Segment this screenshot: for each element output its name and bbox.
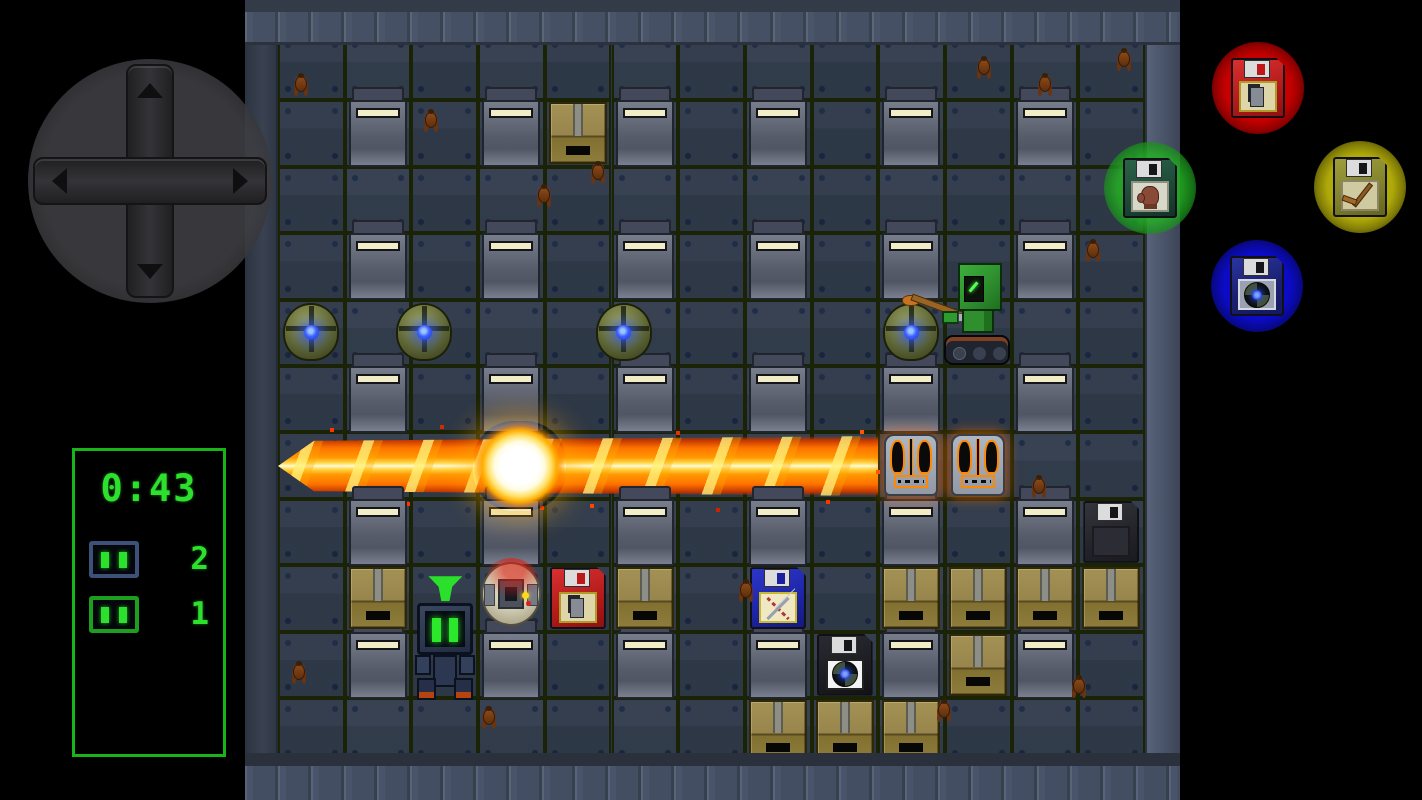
roach (478, 705, 500, 729)
metal-block (349, 619, 407, 699)
roach (1028, 474, 1050, 498)
burning-robot (884, 434, 938, 496)
floor-cell (945, 167, 1012, 233)
floor-cell (545, 233, 612, 299)
metal-block (482, 619, 540, 699)
floor-cell (812, 167, 879, 233)
damaged-robot (481, 562, 541, 626)
green-robot-count: 1 (190, 596, 209, 632)
floor-cell (678, 632, 745, 698)
bomb-floppy-icon (1230, 256, 1284, 316)
floor-cell (545, 499, 612, 565)
dpad-horizontal-bar[interactable] (33, 157, 267, 205)
explosion-core (473, 421, 566, 511)
metal-block (749, 220, 807, 300)
green-robot-head-icon (89, 596, 139, 633)
arena-wall-right (1145, 0, 1180, 800)
floor-cell (678, 167, 745, 233)
metal-block (749, 619, 807, 699)
explosion-sparks (278, 436, 282, 440)
action-button-red[interactable] (1212, 42, 1304, 134)
roach (973, 55, 995, 79)
status-panel: 0:43 2 1 (72, 448, 226, 757)
roach (1082, 238, 1104, 262)
wooden-crate (1016, 567, 1074, 629)
roach (587, 160, 609, 184)
floor-cell (1078, 300, 1145, 366)
metal-block (616, 486, 674, 566)
floor-cell (678, 300, 745, 366)
roach (735, 578, 757, 602)
pickup-floppy-red-detonator (550, 567, 606, 629)
metal-block (616, 619, 674, 699)
glove-floppy-icon (1123, 158, 1177, 218)
metal-block (349, 87, 407, 167)
metal-block (882, 486, 940, 566)
roach (933, 698, 955, 722)
wooden-crate (949, 567, 1007, 629)
metal-block (616, 220, 674, 300)
floor-cell (812, 499, 879, 565)
floor-cell (945, 499, 1012, 565)
metal-block (482, 220, 540, 300)
metal-block (616, 87, 674, 167)
floor-cell (278, 100, 345, 166)
metal-block (349, 220, 407, 300)
pickup-floppy-black (1083, 501, 1139, 563)
target-marker-icon (428, 576, 462, 601)
arena-wall-top (245, 0, 1180, 45)
bomb (396, 303, 452, 361)
floor-cell (945, 366, 1012, 432)
wooden-crate (616, 567, 674, 629)
enemy-robot (413, 576, 477, 700)
pickup-floppy-blue-cross (750, 567, 806, 629)
action-button-yellow[interactable] (1314, 141, 1406, 233)
match-timer: 0:43 (75, 467, 223, 510)
roach (1034, 72, 1056, 96)
floor-cell (278, 565, 345, 631)
floor-cell (812, 233, 879, 299)
dpad-left-icon[interactable] (52, 168, 67, 194)
bomb (283, 303, 339, 361)
arena-wall-bottom (245, 753, 1180, 800)
wooden-crate (349, 567, 407, 629)
burning-robot (951, 434, 1005, 496)
metal-block (482, 87, 540, 167)
dpad-up-icon[interactable] (137, 83, 163, 98)
floor-cell (678, 366, 745, 432)
metal-block (882, 87, 940, 167)
floor-cell (945, 100, 1012, 166)
player-tank (908, 263, 1014, 367)
action-button-green[interactable] (1104, 142, 1196, 234)
metal-block (616, 353, 674, 433)
counter-row: 1 (89, 594, 209, 634)
floor-cell (678, 100, 745, 166)
floor-cell (812, 300, 879, 366)
roach (1068, 674, 1090, 698)
metal-block (349, 353, 407, 433)
floor-cell (1078, 432, 1145, 498)
metal-block (1016, 619, 1074, 699)
blue-robot-count: 2 (190, 541, 209, 577)
floor-cell (278, 366, 345, 432)
dpad-down-icon[interactable] (137, 264, 163, 279)
floor-cell (545, 632, 612, 698)
counter-row: 2 (89, 539, 209, 579)
metal-block (1016, 220, 1074, 300)
dpad-right-icon[interactable] (233, 168, 248, 194)
floor-cell (812, 100, 879, 166)
roach (1113, 47, 1135, 71)
floor-cell (812, 565, 879, 631)
metal-block (749, 87, 807, 167)
roach (290, 72, 312, 96)
metal-block (1016, 353, 1074, 433)
metal-block (1016, 87, 1074, 167)
floor-cell (678, 499, 745, 565)
wooden-crate (1082, 567, 1140, 629)
metal-block (349, 486, 407, 566)
dpad[interactable] (28, 59, 272, 303)
action-button-blue[interactable] (1211, 240, 1303, 332)
floor-cell (545, 366, 612, 432)
stick-floppy-icon (1333, 157, 1387, 217)
roach (288, 660, 310, 684)
radio-floppy-icon (1231, 58, 1285, 118)
floor-cell (278, 167, 345, 233)
bomb (596, 303, 652, 361)
floor-cell (278, 499, 345, 565)
floor-cell (411, 167, 478, 233)
floor-cell (411, 366, 478, 432)
wooden-crate (949, 634, 1007, 696)
floor-cell (678, 233, 745, 299)
floor-cell (812, 366, 879, 432)
blue-robot-head-icon (89, 541, 139, 578)
metal-block (749, 353, 807, 433)
roach (533, 183, 555, 207)
floor-cell (411, 233, 478, 299)
game-screen: 0:43 2 1 (0, 0, 1422, 800)
metal-block (882, 619, 940, 699)
floor-cell (1078, 366, 1145, 432)
pickup-floppy-bomb-up (817, 634, 873, 696)
roach (420, 108, 442, 132)
floor-cell (411, 499, 478, 565)
wooden-crate (882, 567, 940, 629)
floor-cell (278, 233, 345, 299)
metal-block (749, 486, 807, 566)
wooden-crate (549, 102, 607, 164)
